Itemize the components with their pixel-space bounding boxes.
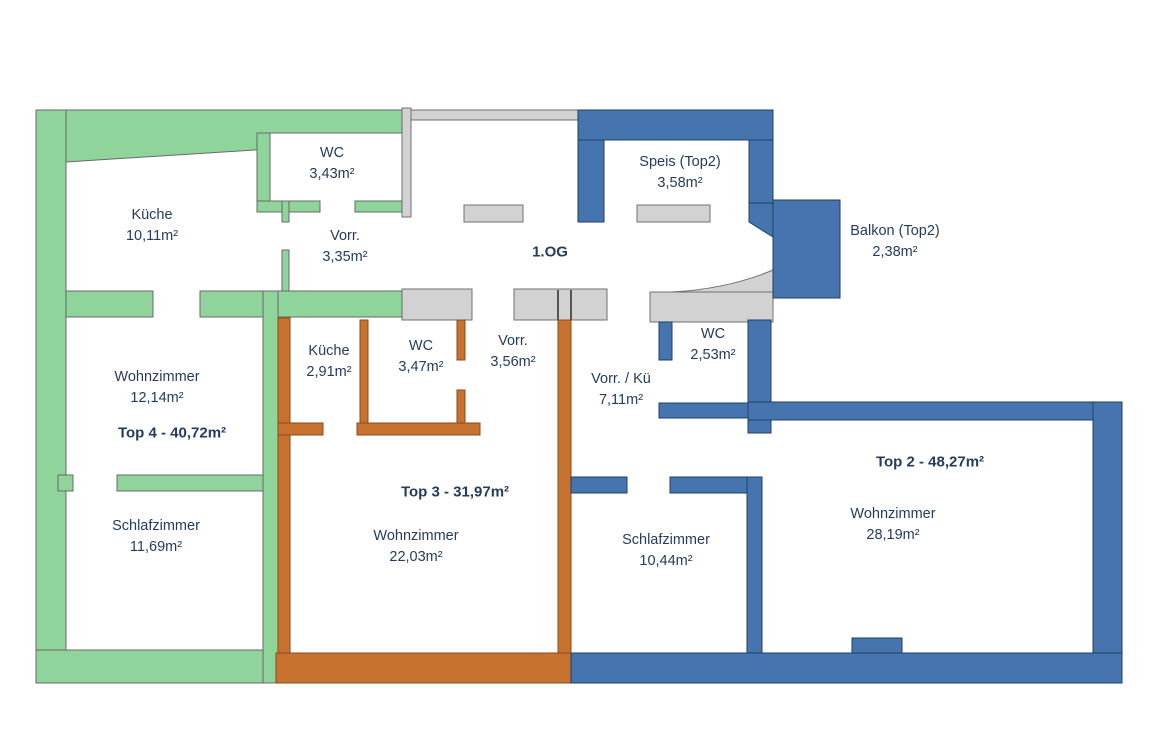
room-label-wohnzimmer-top4: Wohnzimmer 12,14m² [114,367,199,409]
top3-east-wall [558,320,571,653]
room-label-schlafzimmer-top2: Schlafzimmer 10,44m² [622,530,710,572]
room-name: Küche [306,341,351,362]
room-area: 7,11m² [591,390,651,411]
top4-bedroom-wall [117,475,263,491]
room-label-wc-top4: WC 3,43m² [309,143,354,185]
top2-bedroom-top-wall [670,477,747,493]
top4-bedroom-wall-stub [58,475,73,491]
stair-ramp [650,292,773,322]
top4-west-wall [36,110,66,650]
stair-flight-1 [464,205,523,222]
room-area: 2,53m² [690,345,735,366]
room-name: Wohnzimmer [373,526,458,547]
room-name: Schlafzimmer [112,516,200,537]
top3-wc-left-wall [360,320,368,423]
floor-label: 1.OG [532,242,568,263]
stair-landing-mid [514,289,607,320]
room-area: 12,14m² [114,388,199,409]
top4-door-jamb [282,250,289,292]
room-label-speis-top2: Speis (Top2) 3,58m² [639,152,720,194]
unit-total-top4: Top 4 - 40,72m² [118,423,226,444]
room-name: Schlafzimmer [622,530,710,551]
top3-kitchen-wall [278,423,323,435]
top3-wc-bottom-wall [357,423,480,435]
top3-west-wall [278,318,290,653]
room-label-wohnzimmer-top2: Wohnzimmer 28,19m² [850,504,935,546]
room-name: Balkon (Top2) [850,221,939,242]
top2-south-wall [571,653,1122,683]
stair-left-wall [402,108,411,217]
top4-south-wall [36,650,278,683]
room-label-wohnzimmer-top3: Wohnzimmer 22,03m² [373,526,458,568]
room-area: 2,91m² [306,362,351,383]
room-name: Speis (Top2) [639,152,720,173]
room-area: 2,38m² [850,242,939,263]
top2-east-wall [1093,402,1122,683]
unit-total-top3: Top 3 - 31,97m² [401,482,509,503]
stair-ramp-curve [672,270,773,292]
top2-balcony-slab [773,200,840,298]
room-area: 3,56m² [490,352,535,373]
room-area: 10,44m² [622,551,710,572]
top3-wc-right-wall [457,390,465,423]
top4-mid-wall [200,291,402,317]
room-label-vorr-top4: Vorr. 3,35m² [322,226,367,268]
stair-top-wall [402,110,578,120]
room-name: Wohnzimmer [850,504,935,525]
top3-wc-right-wall [457,320,465,360]
top4-walls [36,110,402,683]
top4-mid-wall [66,291,153,317]
stair-landing-left [402,289,472,320]
top2-bedroom-right-wall [747,477,762,653]
room-label-vorr-top3: Vorr. 3,56m² [490,331,535,373]
room-label-wc-top3: WC 3,47m² [398,336,443,378]
top2-bedroom-top-wall [571,477,627,493]
room-area: 3,47m² [398,357,443,378]
top2-wc-bottom-wall [659,403,748,418]
top2-north-wall [748,402,1122,420]
room-name: WC [309,143,354,164]
top2-walls [571,110,1122,683]
room-area: 22,03m² [373,547,458,568]
room-name: WC [398,336,443,357]
room-area: 11,69m² [112,537,200,558]
room-area: 28,19m² [850,525,935,546]
room-label-kueche-top4: Küche 10,11m² [126,205,178,247]
top4-east-wall [263,291,278,683]
top3-south-wall [276,653,571,683]
top2-wc-left-stub [659,322,672,360]
stair-flight-2 [637,205,710,222]
room-label-kueche-top3: Küche 2,91m² [306,341,351,383]
unit-total-top2: Top 2 - 48,27m² [876,452,984,473]
top4-wc-bottom-wall [355,201,402,212]
top4-wc-left-wall [257,133,270,212]
floorplan-page: WC 3,43m² Küche 10,11m² Vorr. 3,35m² 1.O… [0,0,1149,754]
room-label-vorr-kue-top2: Vorr. / Kü 7,11m² [591,369,651,411]
room-name: Vorr. [322,226,367,247]
top2-south-notch [852,638,902,653]
room-name: WC [690,324,735,345]
room-area: 3,35m² [322,247,367,268]
top2-speis-right-wall [749,140,773,206]
top2-balcony-jamb [749,203,773,237]
room-area: 3,43m² [309,164,354,185]
room-area: 10,11m² [126,226,178,247]
room-name: Küche [126,205,178,226]
room-name: Wohnzimmer [114,367,199,388]
room-name: Vorr. [490,331,535,352]
room-label-schlafzimmer-top4: Schlafzimmer 11,69m² [112,516,200,558]
top4-door-jamb [282,201,289,222]
room-name: Vorr. / Kü [591,369,651,390]
room-label-wc-top2: WC 2,53m² [690,324,735,366]
room-label-balkon-top2: Balkon (Top2) 2,38m² [850,221,939,263]
room-area: 3,58m² [639,173,720,194]
top2-speis-top-wall [578,110,773,140]
